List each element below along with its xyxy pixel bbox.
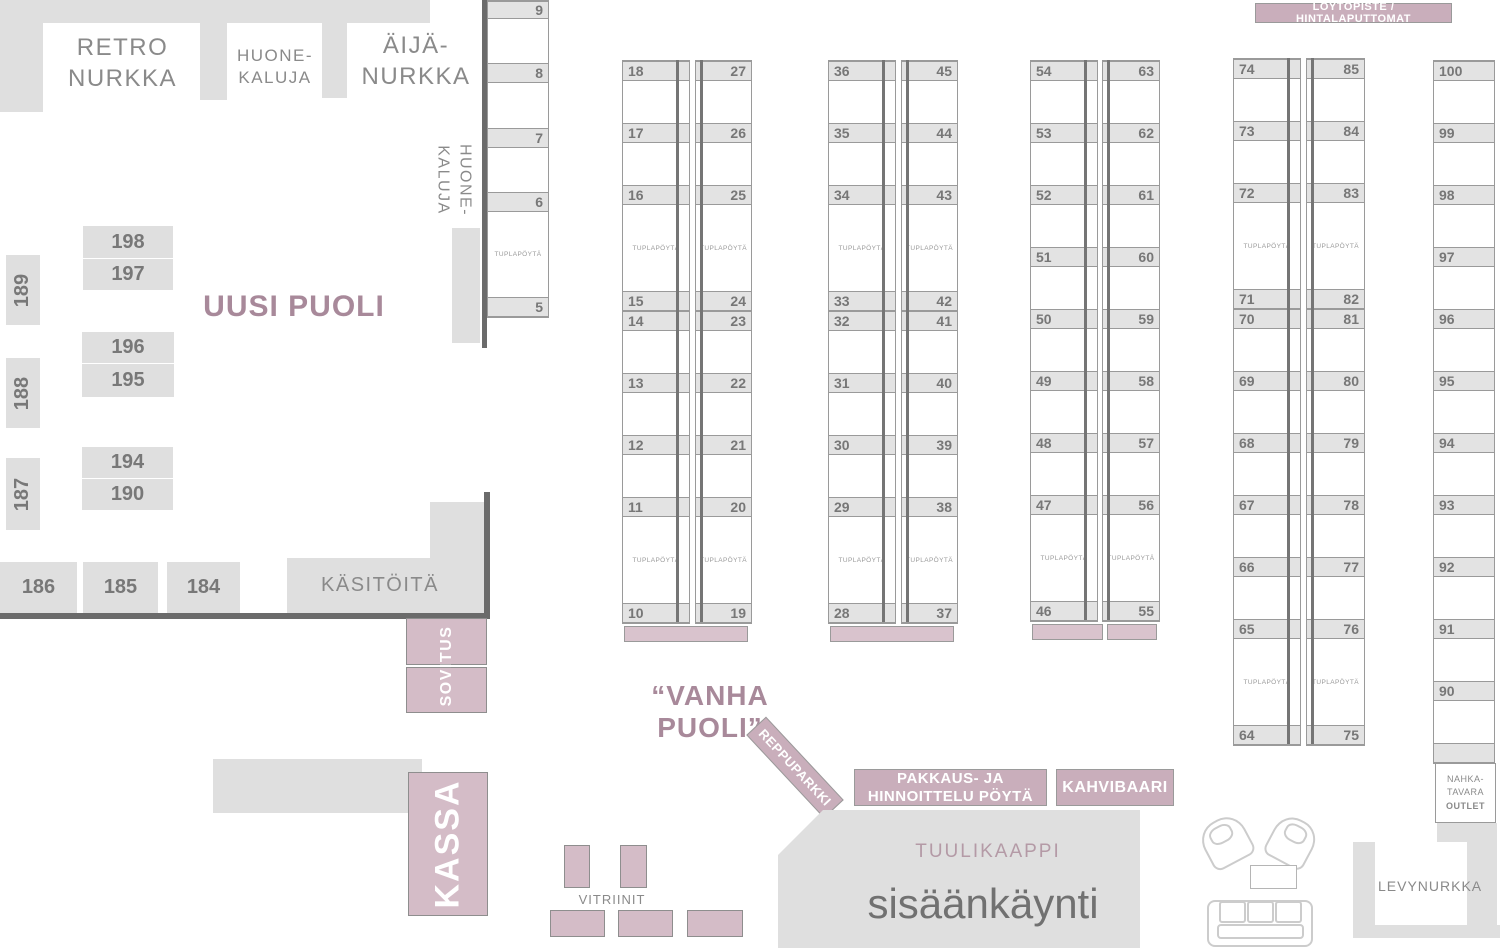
tables-10-27-subcol: 272625TUPLAPÖYTÄ2423222120TUPLAPÖYTÄ19 <box>695 60 752 624</box>
tuplapoyta-cell: TUPLAPÖYTÄ <box>1103 515 1159 601</box>
table-62: 62 <box>1103 123 1159 143</box>
booth-198: 198 <box>83 226 173 258</box>
table-98: 98 <box>1434 185 1494 205</box>
table-50: 50 <box>1031 309 1097 329</box>
empty-cell <box>1031 143 1097 185</box>
booth-number: 186 <box>22 576 55 599</box>
table-24: 24 <box>696 291 751 311</box>
vitriini-box-4 <box>618 910 673 937</box>
table-25: 25 <box>696 185 751 205</box>
table-52: 52 <box>1031 185 1097 205</box>
tables-10-27-subcol: 181716TUPLAPÖYTÄ1514131211TUPLAPÖYTÄ10 <box>622 60 690 624</box>
empty-cell <box>696 331 751 373</box>
table-80: 80 <box>1307 371 1364 391</box>
tuplapoyta-cell: TUPLAPÖYTÄ <box>1307 639 1364 725</box>
empty-cell <box>1434 267 1494 309</box>
nahka-line3: OUTLET <box>1446 800 1485 814</box>
tables-46-63-subcol: 5453525150494847TUPLAPÖYTÄ46 <box>1030 60 1098 622</box>
booth-number: 189 <box>12 273 35 306</box>
table-70: 70 <box>1234 309 1300 329</box>
sovitus-label: SOVITUS <box>438 626 456 707</box>
pink-bar <box>830 626 954 642</box>
table-13: 13 <box>623 373 689 393</box>
empty-cell <box>1234 329 1300 371</box>
table-54: 54 <box>1031 61 1097 81</box>
empty-cell <box>1103 81 1159 123</box>
empty-cell <box>902 393 957 435</box>
levynurkka-wall-right <box>1467 823 1497 925</box>
empty-cell <box>1103 143 1159 185</box>
empty-cell <box>1434 143 1494 185</box>
empty-cell <box>696 393 751 435</box>
empty-cell <box>1434 701 1494 743</box>
empty-cell <box>623 81 689 123</box>
table-5: 5 <box>488 297 548 317</box>
booth-number: 188 <box>12 376 35 409</box>
table-69: 69 <box>1234 371 1300 391</box>
empty-cell <box>696 455 751 497</box>
table-72: 72 <box>1234 183 1300 203</box>
empty-cell <box>1434 515 1494 557</box>
table-61: 61 <box>1103 185 1159 205</box>
table-85: 85 <box>1307 59 1364 79</box>
booth-number: 190 <box>111 483 144 506</box>
table-34: 34 <box>829 185 895 205</box>
empty-cell <box>1234 453 1300 495</box>
divider-line <box>676 60 679 622</box>
divider-line <box>906 60 909 622</box>
sisaankaynti-label: sisäänkäynti <box>833 880 1133 928</box>
tuulikaappi-label: TUULIKAAPPI <box>838 841 1138 863</box>
wall-block-mid <box>452 228 480 343</box>
booth-number: 198 <box>111 231 144 254</box>
table-60: 60 <box>1103 247 1159 267</box>
table-77: 77 <box>1307 557 1364 577</box>
table-9: 9 <box>488 1 548 19</box>
tuplapoyta-cell: TUPLAPÖYTÄ <box>902 205 957 291</box>
nahka-line2: TAVARA <box>1447 786 1484 800</box>
tuplapoyta-cell: TUPLAPÖYTÄ <box>829 517 895 603</box>
table-26: 26 <box>696 123 751 143</box>
kahvibaari-badge: KAHVIBAARI <box>1056 769 1174 806</box>
empty-cell <box>1103 205 1159 247</box>
vitriini-box-3 <box>550 910 605 937</box>
table-67: 67 <box>1234 495 1300 515</box>
booth-188: 188 <box>6 358 40 428</box>
huonekaluja-side-line1: HUONE- <box>454 144 476 216</box>
tuplapoyta-cell: TUPLAPÖYTÄ <box>1031 515 1097 601</box>
table-51: 51 <box>1031 247 1097 267</box>
area-aija-nurkka: ÄIJÄ- NURKKA <box>352 30 480 92</box>
booth-number: 187 <box>12 477 35 510</box>
divider-line <box>1084 60 1087 620</box>
empty-cell <box>829 81 895 123</box>
booth-number: 196 <box>111 336 144 359</box>
empty-cell <box>1103 329 1159 371</box>
table-100: 100 <box>1434 61 1494 81</box>
table-18: 18 <box>623 61 689 81</box>
table-65: 65 <box>1234 619 1300 639</box>
empty-cell <box>1307 577 1364 619</box>
empty-cell <box>902 143 957 185</box>
booth-186: 186 <box>0 562 77 613</box>
table-99: 99 <box>1434 123 1494 143</box>
empty-cell <box>623 143 689 185</box>
booth-number: 197 <box>111 263 144 286</box>
booth-187: 187 <box>6 458 40 530</box>
table-48: 48 <box>1031 433 1097 453</box>
table-15: 15 <box>623 291 689 311</box>
empty-cell <box>1434 391 1494 433</box>
booth-194: 194 <box>82 447 173 478</box>
kasitoita-label: KÄSITÖITÄ <box>300 560 460 610</box>
table-82: 82 <box>1307 289 1364 309</box>
empty-cell <box>829 331 895 373</box>
title-uusi-puoli: UUSI PUOLI <box>198 290 390 324</box>
table-22: 22 <box>696 373 751 393</box>
pink-bar <box>1107 624 1157 640</box>
tables-28-45-subcol: 363534TUPLAPÖYTÄ3332313029TUPLAPÖYTÄ28 <box>828 60 896 624</box>
tuplapoyta-cell: TUPLAPÖYTÄ <box>623 205 689 291</box>
levynurkka-wall-bottom <box>1375 925 1500 938</box>
table-90: 90 <box>1434 681 1494 701</box>
table-45: 45 <box>902 61 957 81</box>
kassa-label: KASSA <box>429 779 468 908</box>
tables-64-85-subcol: 858483TUPLAPÖYTÄ82818079787776TUPLAPÖYTÄ… <box>1306 58 1365 746</box>
pink-bar <box>624 626 748 642</box>
table-84: 84 <box>1307 121 1364 141</box>
empty-cell <box>1031 81 1097 123</box>
pink-bar <box>1032 624 1103 640</box>
empty-cell <box>1434 329 1494 371</box>
table-57: 57 <box>1103 433 1159 453</box>
empty-cell <box>1307 391 1364 433</box>
empty-cell <box>1234 391 1300 433</box>
empty-cell <box>488 148 548 192</box>
table-7: 7 <box>488 128 548 148</box>
wall-top <box>0 0 430 23</box>
retro-line1: RETRO <box>45 32 200 63</box>
table-32: 32 <box>829 311 895 331</box>
table-95: 95 <box>1434 371 1494 391</box>
table-28: 28 <box>829 603 895 623</box>
loytopiste-badge: LÖYTÖPISTE / HINTALAPUTTOMAT <box>1255 3 1452 23</box>
empty-cell <box>829 143 895 185</box>
table-35: 35 <box>829 123 895 143</box>
pakkaus-line2: HINNOITTELU PÖYTÄ <box>868 788 1033 805</box>
tables-5-9-subcol: 9876TUPLAPÖYTÄ5 <box>487 0 549 318</box>
empty-cell <box>1434 453 1494 495</box>
booth-184: 184 <box>167 562 240 613</box>
booth-195: 195 <box>82 364 174 397</box>
empty-cell <box>902 331 957 373</box>
empty-cell <box>1234 79 1300 121</box>
kasitoita-area-v <box>430 502 487 558</box>
wall-stub-mid <box>200 23 227 100</box>
huonekaluja-top-line1: HUONE- <box>228 45 322 67</box>
sofa-icon <box>1207 900 1313 947</box>
huonekaluja-top-line2: KALUJA <box>228 67 322 89</box>
area-huonekaluja-top: HUONE- KALUJA <box>228 45 322 89</box>
aija-line2: NURKKA <box>352 61 480 92</box>
empty-cell <box>902 81 957 123</box>
coffee-table-icon <box>1250 865 1297 889</box>
empty-cell <box>829 455 895 497</box>
booth-197: 197 <box>83 259 173 290</box>
aija-line1: ÄIJÄ- <box>352 30 480 61</box>
table-27: 27 <box>696 61 751 81</box>
table-19: 19 <box>696 603 751 623</box>
tuplapoyta-cell: TUPLAPÖYTÄ <box>488 212 548 297</box>
title-vanha-puoli: “VANHA PUOLI” <box>596 680 824 744</box>
table-11: 11 <box>623 497 689 517</box>
table-76: 76 <box>1307 619 1364 639</box>
table-78: 78 <box>1307 495 1364 515</box>
table-53: 53 <box>1031 123 1097 143</box>
table-97: 97 <box>1434 247 1494 267</box>
empty-cell <box>696 81 751 123</box>
table-37: 37 <box>902 603 957 623</box>
table-blank <box>1434 743 1494 763</box>
empty-cell <box>829 393 895 435</box>
levynurkka-wall-left <box>1353 842 1375 938</box>
huonekaluja-side-line2: KALUJA <box>432 144 454 216</box>
tables-64-85-subcol: 747372TUPLAPÖYTÄ71706968676665TUPLAPÖYTÄ… <box>1233 58 1301 746</box>
table-33: 33 <box>829 291 895 311</box>
table-71: 71 <box>1234 289 1300 309</box>
floor-plan: RETRO NURKKA HUONE- KALUJA ÄIJÄ- NURKKA … <box>0 0 1500 948</box>
tuplapoyta-cell: TUPLAPÖYTÄ <box>1307 203 1364 289</box>
table-55: 55 <box>1103 601 1159 621</box>
divider-line <box>882 60 885 622</box>
table-21: 21 <box>696 435 751 455</box>
empty-cell <box>902 455 957 497</box>
empty-cell <box>1031 391 1097 433</box>
pakkaus-badge: PAKKAUS- JA HINNOITTELU PÖYTÄ <box>854 769 1047 806</box>
nahka-line1: NAHKA- <box>1447 773 1484 787</box>
table-59: 59 <box>1103 309 1159 329</box>
tuplapoyta-cell: TUPLAPÖYTÄ <box>696 205 751 291</box>
table-91: 91 <box>1434 619 1494 639</box>
table-36: 36 <box>829 61 895 81</box>
empty-cell <box>1031 267 1097 309</box>
wall-stub-right <box>322 23 347 98</box>
divider-line <box>1287 58 1290 744</box>
empty-cell <box>1103 453 1159 495</box>
empty-cell <box>1307 515 1364 557</box>
table-40: 40 <box>902 373 957 393</box>
table-31: 31 <box>829 373 895 393</box>
booth-number: 185 <box>104 576 137 599</box>
table-47: 47 <box>1031 495 1097 515</box>
tuplapoyta-cell: TUPLAPÖYTÄ <box>829 205 895 291</box>
nahkatavara-outlet-box: NAHKA- TAVARA OUTLET <box>1435 763 1496 823</box>
table-94: 94 <box>1434 433 1494 453</box>
wall-bar-kassa <box>213 759 422 813</box>
entrance-area: TUULIKAAPPI sisäänkäynti <box>778 810 1140 948</box>
empty-cell <box>1307 141 1364 183</box>
table-79: 79 <box>1307 433 1364 453</box>
table-8: 8 <box>488 63 548 83</box>
table-83: 83 <box>1307 183 1364 203</box>
tuplapoyta-cell: TUPLAPÖYTÄ <box>696 517 751 603</box>
wall-right-uusi <box>484 492 490 619</box>
table-64: 64 <box>1234 725 1300 745</box>
tuplapoyta-cell: TUPLAPÖYTÄ <box>1234 639 1300 725</box>
table-49: 49 <box>1031 371 1097 391</box>
tables-28-45-subcol: 454443TUPLAPÖYTÄ4241403938TUPLAPÖYTÄ37 <box>901 60 958 624</box>
table-6: 6 <box>488 192 548 212</box>
table-23: 23 <box>696 311 751 331</box>
area-retro-nurkka: RETRO NURKKA <box>45 32 200 94</box>
table-38: 38 <box>902 497 957 517</box>
empty-cell <box>1307 79 1364 121</box>
booth-number: 195 <box>111 369 144 392</box>
table-10: 10 <box>623 603 689 623</box>
table-12: 12 <box>623 435 689 455</box>
table-29: 29 <box>829 497 895 517</box>
table-66: 66 <box>1234 557 1300 577</box>
table-68: 68 <box>1234 433 1300 453</box>
vitriinit-label: VITRIINIT <box>562 892 662 907</box>
divider-line <box>1311 58 1314 744</box>
empty-cell <box>1307 453 1364 495</box>
empty-cell <box>623 393 689 435</box>
booth-number: 184 <box>187 576 220 599</box>
empty-cell <box>1307 329 1364 371</box>
empty-cell <box>1234 515 1300 557</box>
empty-cell <box>623 331 689 373</box>
table-96: 96 <box>1434 309 1494 329</box>
divider-line <box>700 60 703 622</box>
table-92: 92 <box>1434 557 1494 577</box>
empty-cell <box>1234 141 1300 183</box>
table-63: 63 <box>1103 61 1159 81</box>
empty-cell <box>623 455 689 497</box>
empty-cell <box>1434 639 1494 681</box>
divider-line <box>1107 60 1110 620</box>
pakkaus-line1: PAKKAUS- JA <box>897 770 1004 787</box>
table-73: 73 <box>1234 121 1300 141</box>
booth-number: 194 <box>111 451 144 474</box>
empty-cell <box>1103 267 1159 309</box>
table-42: 42 <box>902 291 957 311</box>
table-75: 75 <box>1307 725 1364 745</box>
area-huonekaluja-side: HUONE- KALUJA <box>432 144 475 216</box>
levynurkka-wall-connector <box>1437 823 1467 842</box>
table-41: 41 <box>902 311 957 331</box>
armchair-icon <box>1195 810 1258 873</box>
empty-cell <box>1434 205 1494 247</box>
tuplapoyta-cell: TUPLAPÖYTÄ <box>902 517 957 603</box>
table-46: 46 <box>1031 601 1097 621</box>
table-56: 56 <box>1103 495 1159 515</box>
table-93: 93 <box>1434 495 1494 515</box>
table-81: 81 <box>1307 309 1364 329</box>
empty-cell <box>1031 453 1097 495</box>
empty-cell <box>1103 391 1159 433</box>
armchair-icon <box>1262 810 1323 872</box>
empty-cell <box>1234 577 1300 619</box>
table-58: 58 <box>1103 371 1159 391</box>
vitriini-box-5 <box>687 910 743 937</box>
empty-cell <box>1031 329 1097 371</box>
empty-cell <box>1434 577 1494 619</box>
empty-cell <box>1031 205 1097 247</box>
tuplapoyta-cell: TUPLAPÖYTÄ <box>1234 203 1300 289</box>
table-14: 14 <box>623 311 689 331</box>
empty-cell <box>696 143 751 185</box>
table-43: 43 <box>902 185 957 205</box>
booth-190: 190 <box>82 479 173 510</box>
levynurkka-label: LEVYNURKKA <box>1378 878 1470 894</box>
vitriini-box-1 <box>564 845 590 888</box>
table-74: 74 <box>1234 59 1300 79</box>
booth-185: 185 <box>83 562 158 613</box>
empty-cell <box>488 83 548 128</box>
table-39: 39 <box>902 435 957 455</box>
table-16: 16 <box>623 185 689 205</box>
table-30: 30 <box>829 435 895 455</box>
table-44: 44 <box>902 123 957 143</box>
tuplapoyta-cell: TUPLAPÖYTÄ <box>623 517 689 603</box>
empty-cell <box>488 19 548 63</box>
retro-line2: NURKKA <box>45 63 200 94</box>
table-17: 17 <box>623 123 689 143</box>
tables-46-63-subcol: 6362616059585756TUPLAPÖYTÄ55 <box>1102 60 1160 622</box>
table-20: 20 <box>696 497 751 517</box>
vitriini-box-2 <box>620 845 647 888</box>
booth-189: 189 <box>6 255 40 325</box>
booth-196: 196 <box>82 332 174 363</box>
wall-stub-left <box>0 23 43 112</box>
tables-90-100-subcol: 10099989796959493929190 <box>1433 60 1495 764</box>
empty-cell <box>1434 81 1494 123</box>
